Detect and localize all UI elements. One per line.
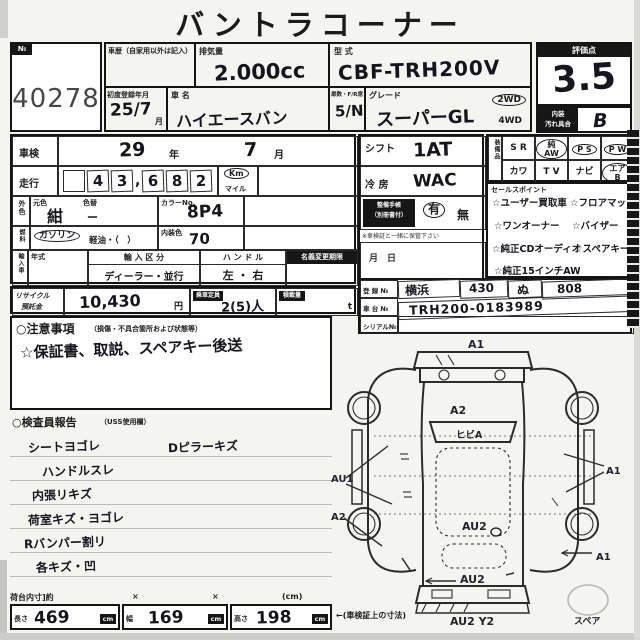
recycle-label-2: 預託金 — [21, 302, 42, 312]
grade-box: グレード スーパーGL 2WD 4WD — [364, 86, 532, 132]
history-label: 車歴（自家用以外は記入） — [108, 46, 192, 56]
shift-label: シフト — [365, 140, 395, 155]
import-label: 輸入車 — [16, 253, 25, 274]
inspector-report: ○検査員報告 （USS使用欄） シートヨゴレ Dピラーキズ ハンドルスレ 内張リ… — [10, 414, 332, 592]
inspector-item: 内張リキズ — [32, 485, 93, 504]
model-code-value: CBF-TRH200V — [338, 55, 501, 85]
length-value: 469 — [34, 607, 70, 628]
import-kind-cell: 輸 入 区 分 ディーラー・並行 — [88, 250, 200, 286]
first-registration-box: 初度登録年月 25/7 月 — [104, 86, 168, 132]
length-label: 長さ — [14, 614, 28, 624]
displacement-box: 排気量 2.000cc — [194, 42, 330, 88]
year-model-label: 年式 — [31, 252, 45, 262]
history-box: 車歴（自家用以外は記入） — [104, 42, 196, 88]
dims-x1: × — [132, 592, 139, 601]
first-registration-unit: 月 — [155, 116, 163, 127]
records-yes-circled: 有 — [423, 202, 445, 218]
mileage-label: 走行 — [19, 175, 39, 190]
inspector-item: 荷室キズ・ヨゴレ — [28, 508, 125, 528]
load-label: 積載量 — [279, 291, 305, 301]
reg-label: 登 録 № — [363, 285, 388, 295]
serial-value — [398, 316, 634, 334]
chassis-label: 車 台 № — [363, 303, 388, 313]
fuel-value-cell: ガソリン 軽油・（ ） — [30, 226, 158, 250]
caution-box: ○注意事項 （損傷・不具合箇所および状態等） ☆保証書、取説、スペアキー後送 — [10, 316, 332, 410]
grade-value: スーパーGL — [376, 102, 475, 131]
mark-left-rear: A2 — [331, 512, 346, 523]
import-kind-label: 輸 入 区 分 — [89, 252, 199, 265]
recolor-label: 色替 — [83, 198, 97, 208]
fuel-empty-cell — [244, 226, 358, 250]
inspector-item: Rバンパー割リ — [24, 533, 106, 553]
interior-label-1: 内装 — [538, 110, 578, 120]
records-cell: 整備手帳 （別冊書付） 有 無 — [360, 196, 486, 230]
shaken-month-unit: 月 — [274, 146, 284, 161]
color-no-cell: カラーNo. 8P4 — [158, 196, 244, 226]
mark-front: A1 — [468, 338, 484, 351]
inspector-header: ○検査員報告 — [12, 414, 77, 430]
doors-label: 扉数・F/R席 — [331, 90, 363, 98]
base-color-cell: 元色 紺 色替 ー — [30, 196, 158, 226]
mileage-digit: 3 — [111, 170, 134, 193]
import-kind-value: ディーラー・並行 — [89, 268, 199, 283]
car-name-value: ハイエースバン — [176, 104, 288, 132]
equip-navi: ナビ — [568, 160, 601, 184]
dims-unit-header: (cm) — [282, 592, 302, 601]
color-empty-cell — [244, 196, 358, 226]
drive-4wd: 4WD — [498, 116, 522, 126]
mark-right-low: A1 — [596, 552, 611, 563]
mileage-digits-cell: 4 3 , 6 8 2 — [58, 166, 218, 196]
inspector-item: ハンドルスレ — [42, 461, 115, 481]
drive-2wd-circled: 2WD — [492, 94, 526, 106]
interior-grade-box: 内装 汚れ具合 B — [536, 106, 632, 133]
displacement-value: 2.000cc — [214, 58, 306, 85]
year-model-cell: 年式 — [28, 250, 88, 286]
sales-points-box: セールスポイント ☆ユーザー買取車 ☆フロアマット ☆ワンオーナー ☆バイザー … — [486, 182, 632, 278]
mileage-empty-cell — [258, 166, 358, 196]
mileage-digit: 4 — [87, 170, 110, 193]
mark-bottom: AU2 Y2 — [450, 615, 494, 626]
mileage-comma: , — [135, 173, 140, 189]
recolor-value: ー — [87, 209, 98, 225]
handle-cell: ハ ン ド ル 左 ・ 右 — [200, 250, 286, 286]
interior-color-cell: 内装色 70 — [158, 226, 244, 250]
serial-label: シリアル№ — [363, 321, 397, 331]
inspector-header-sub: （USS使用欄） — [100, 417, 150, 427]
grade-label: グレード — [369, 90, 401, 101]
inspector-item: 各キズ・凹 — [36, 557, 97, 576]
mileage-label-cell: 走行 — [12, 166, 58, 196]
equip-sr: S R — [502, 136, 535, 160]
shaken-label-cell: 車検 — [12, 136, 58, 166]
recycle-label-cell: リサイクル 預託金 — [12, 288, 64, 316]
doors-value: 5/N — [335, 102, 364, 121]
width-unit: cm — [208, 614, 224, 624]
transfer-label: 名義変更期限 — [287, 251, 357, 264]
score-box: 評価点 3.5 — [536, 42, 632, 106]
length-unit: cm — [100, 614, 116, 624]
mark-left-mid: AU1 — [331, 474, 354, 485]
recycle-row: リサイクル 預託金 10,430 円 乗車定員 2(5)人 積載量 t — [10, 286, 356, 314]
inspector-item: Dピラーキズ — [168, 437, 239, 456]
sales-point: ☆純正CDオーディオ — [492, 241, 581, 255]
records-no: 無 — [457, 206, 469, 223]
serial-label-cell: シリアル№ — [360, 316, 398, 334]
equip-kawa: カワ — [502, 160, 535, 184]
model-code-box: 型 式 CBF-TRH200V — [328, 42, 532, 88]
transfer-cell: 名義変更期限 — [286, 250, 358, 286]
interior-color-label: 内装色 — [161, 228, 182, 238]
mark-rear: AU2 — [460, 573, 485, 586]
mileage-unit-mile: マイル — [225, 184, 246, 194]
height-unit: cm — [312, 614, 328, 624]
registration-table: 登 録 № 横浜 430 ぬ 808 車 台 № TRH200-0183989 … — [358, 278, 632, 334]
caution-header: ○注意事項 — [16, 320, 74, 337]
inspector-item: シートヨゴレ — [28, 437, 101, 457]
car-name-box: 車 名 ハイエースバン — [166, 86, 330, 132]
recycle-amount: 10,430 — [79, 291, 141, 312]
sales-point: ☆純正15インチAW — [494, 263, 581, 277]
first-registration-label: 初度登録年月 — [107, 90, 149, 100]
auction-sheet: { "title": "バントラコーナー", "lot": { "tag": "… — [0, 0, 640, 640]
mileage-digit-blank — [63, 170, 85, 192]
dims-x2: × — [212, 592, 219, 601]
mileage-digit: 2 — [190, 170, 213, 193]
model-code-label: 型 式 — [334, 46, 353, 57]
color-no-value: 8P4 — [187, 201, 224, 222]
doors-box: 扉数・F/R席 5/N — [328, 86, 366, 132]
dims-header: 荷台内寸]約 — [10, 592, 54, 603]
lot-no-tag: № — [12, 44, 32, 55]
ac-label: 冷 房 — [365, 176, 388, 191]
shaken-year-unit: 年 — [169, 146, 179, 161]
mileage-unit-km: Km — [224, 168, 249, 179]
caution-header-sub: （損傷・不具合箇所および状態等） — [90, 324, 202, 334]
records-note: ※車検証と一緒に保管下さい — [362, 231, 439, 240]
records-label-1: 整備手帳 — [363, 201, 415, 211]
interior-color-value: 70 — [189, 230, 210, 249]
lot-number-box: № 40278 — [10, 42, 102, 132]
base-color-value: 紺 — [47, 203, 64, 228]
equip-aw: 純AW — [535, 136, 568, 160]
sales-points-label: セールスポイント — [491, 185, 547, 195]
recycle-yen: 円 — [174, 299, 183, 312]
shaken-label: 車検 — [19, 145, 39, 160]
sales-point: ☆フロアマット — [570, 195, 636, 209]
color-label: 外色 — [17, 200, 27, 216]
capacity-cell: 乗車定員 2(5)人 — [190, 288, 276, 316]
mid-detail-table: シフト 1AT 冷 房 WAC 整備手帳 （別冊書付） 有 無 ※車検証と一緒に… — [358, 134, 484, 284]
reg-kana: ぬ — [508, 279, 543, 298]
reg-label-cell: 登 録 № — [360, 280, 398, 298]
displacement-label: 排気量 — [199, 46, 223, 57]
sales-point: ☆ユーザー買取車 — [492, 195, 567, 209]
mark-hood: A2 — [450, 404, 466, 417]
shaken-month: 7 — [244, 139, 258, 161]
scan-edge-left — [0, 560, 7, 640]
shift-cell: シフト 1AT — [360, 136, 486, 166]
left-detail-table: 車検 29 年 7 月 走行 4 3 , 6 8 2 Km マイル 外色 元色 … — [10, 134, 356, 284]
recycle-amount-cell: 10,430 円 — [64, 288, 190, 316]
capacity-label: 乗車定員 — [193, 291, 223, 301]
ac-value: WAC — [413, 170, 457, 192]
damage-diagram: A1 A2 ヒビA AU1 A2 AU2 AU2 AU2 Y2 A1 A1 スペ… — [330, 334, 636, 626]
width-value: 169 — [148, 607, 184, 628]
sales-point: ☆スペアキー — [574, 241, 629, 255]
shaken-year: 29 — [119, 139, 146, 162]
color-label-cell: 外色 — [12, 196, 30, 226]
caution-note: ☆保証書、取説、スペアキー後送 — [20, 334, 243, 363]
mileage-unit-cell: Km マイル — [218, 166, 258, 196]
shift-value: 1AT — [413, 138, 453, 161]
base-color-label: 元色 — [33, 198, 47, 208]
spare-label: スペア — [574, 616, 600, 626]
chassis-label-cell: 車 台 № — [360, 298, 398, 316]
interior-grade-value: B — [593, 110, 608, 132]
transfer-date-value: 月 日 — [369, 251, 396, 264]
shaken-value-cell: 29 年 7 月 — [58, 136, 358, 166]
fuel-label: 燃料 — [17, 229, 26, 243]
mileage-digit: 8 — [166, 170, 189, 193]
fuel-diesel: 軽油・（ ） — [89, 234, 136, 246]
reg-class: 430 — [460, 279, 509, 299]
fuel-gasoline-circled: ガソリン — [34, 230, 80, 242]
mark-windshield: ヒビA — [456, 429, 483, 441]
equipment-grid: 装備品 S R 純AW P S P W カワ T V ナビ エアB — [486, 134, 632, 182]
fuel-label-cell: 燃料 — [12, 226, 30, 250]
height-value: 198 — [256, 607, 292, 628]
equip-ps: P S — [568, 136, 601, 160]
recycle-label-1: リサイクル — [15, 291, 50, 301]
sales-point: ☆ワンオーナー — [494, 218, 560, 232]
sales-point: ☆バイザー — [572, 218, 619, 232]
width-label: 幅 — [126, 614, 133, 624]
handle-value: 左 ・ 右 — [201, 267, 285, 283]
equipment-label-cell: 装備品 — [488, 136, 502, 184]
mark-center: AU2 — [462, 520, 487, 533]
reg-area: 横浜 — [398, 279, 461, 299]
mileage-digit: 6 — [142, 170, 165, 193]
equip-tv: T V — [535, 160, 568, 184]
vertical-notice-strip — [627, 130, 639, 328]
mark-right-mid: A1 — [606, 466, 621, 477]
import-label-cell: 輸入車 — [12, 250, 28, 286]
score-value: 3.5 — [537, 55, 632, 102]
handle-label: ハ ン ド ル — [201, 252, 285, 265]
ac-cell: 冷 房 WAC — [360, 166, 486, 196]
height-label: 高さ — [234, 614, 248, 624]
car-name-label: 車 名 — [171, 90, 190, 101]
load-unit: t — [348, 302, 352, 312]
records-label-2: （別冊書付） — [363, 211, 415, 221]
first-registration-value: 25/7 — [110, 99, 152, 120]
interior-label-2: 汚れ具合 — [538, 120, 578, 130]
page-title: バントラコーナー — [0, 2, 640, 44]
lot-number: 40278 — [12, 84, 100, 114]
capacity-value: 2(5)人 — [221, 295, 265, 315]
load-cell: 積載量 t — [276, 288, 358, 316]
equipment-label: 装備品 — [492, 139, 501, 160]
